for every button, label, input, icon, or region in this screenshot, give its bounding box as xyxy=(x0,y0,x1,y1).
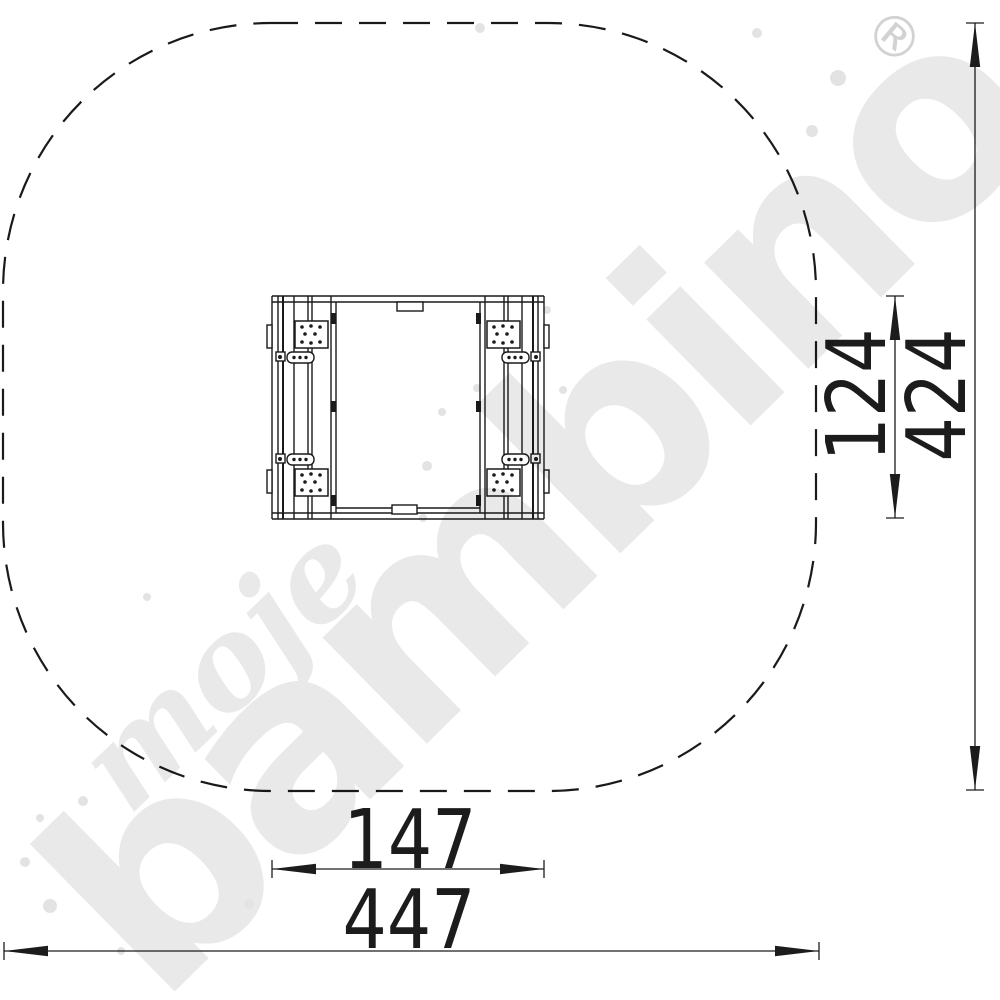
plan-canvas: 147 447 124 424 bambino moje ® xyxy=(0,0,1000,1000)
dimension-label-inner-depth: 124 xyxy=(817,328,899,461)
dimension-label-inner-width: 147 xyxy=(343,800,476,882)
dimension-label-outer-width: 447 xyxy=(342,880,475,962)
dimension-labels: 147 447 124 424 xyxy=(0,0,1000,1000)
dimension-label-outer-depth: 424 xyxy=(897,328,979,461)
